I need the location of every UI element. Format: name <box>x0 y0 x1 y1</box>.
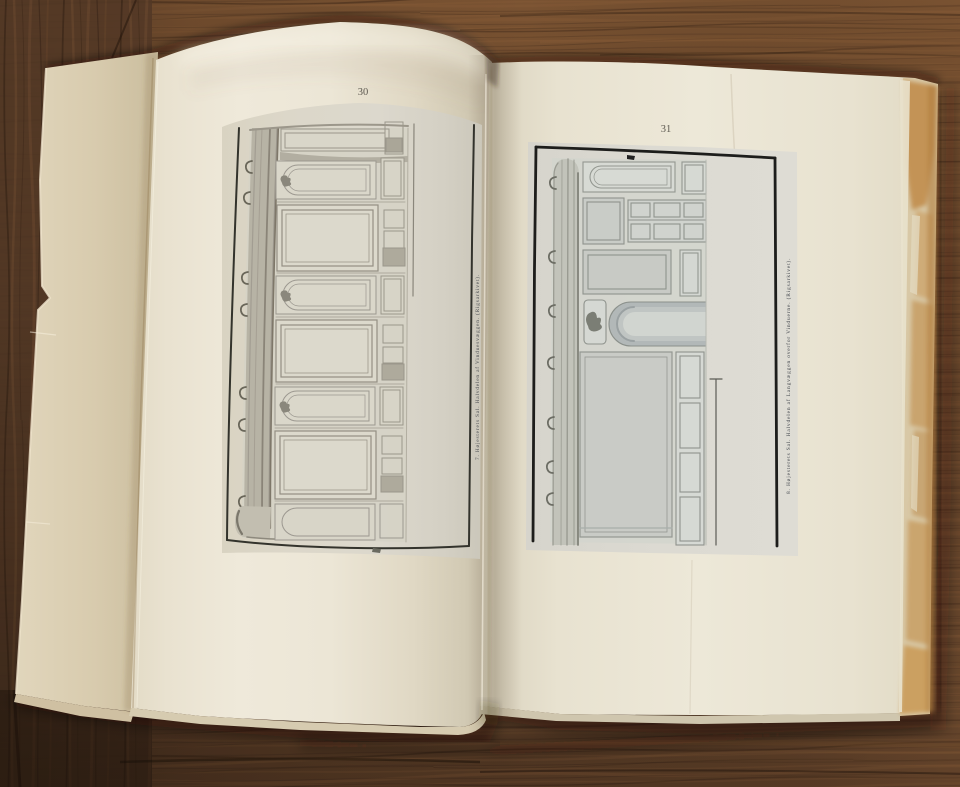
svg-text:8. Højesterets Sal. Halvdelen: 8. Højesterets Sal. Halvdelen af Langvæg… <box>785 258 792 494</box>
svg-text:30: 30 <box>358 87 369 98</box>
svg-text:31: 31 <box>661 124 672 135</box>
svg-text:7. Højesterets Sal. Halvdelen: 7. Højesterets Sal. Halvdelen af Vindues… <box>474 274 481 460</box>
